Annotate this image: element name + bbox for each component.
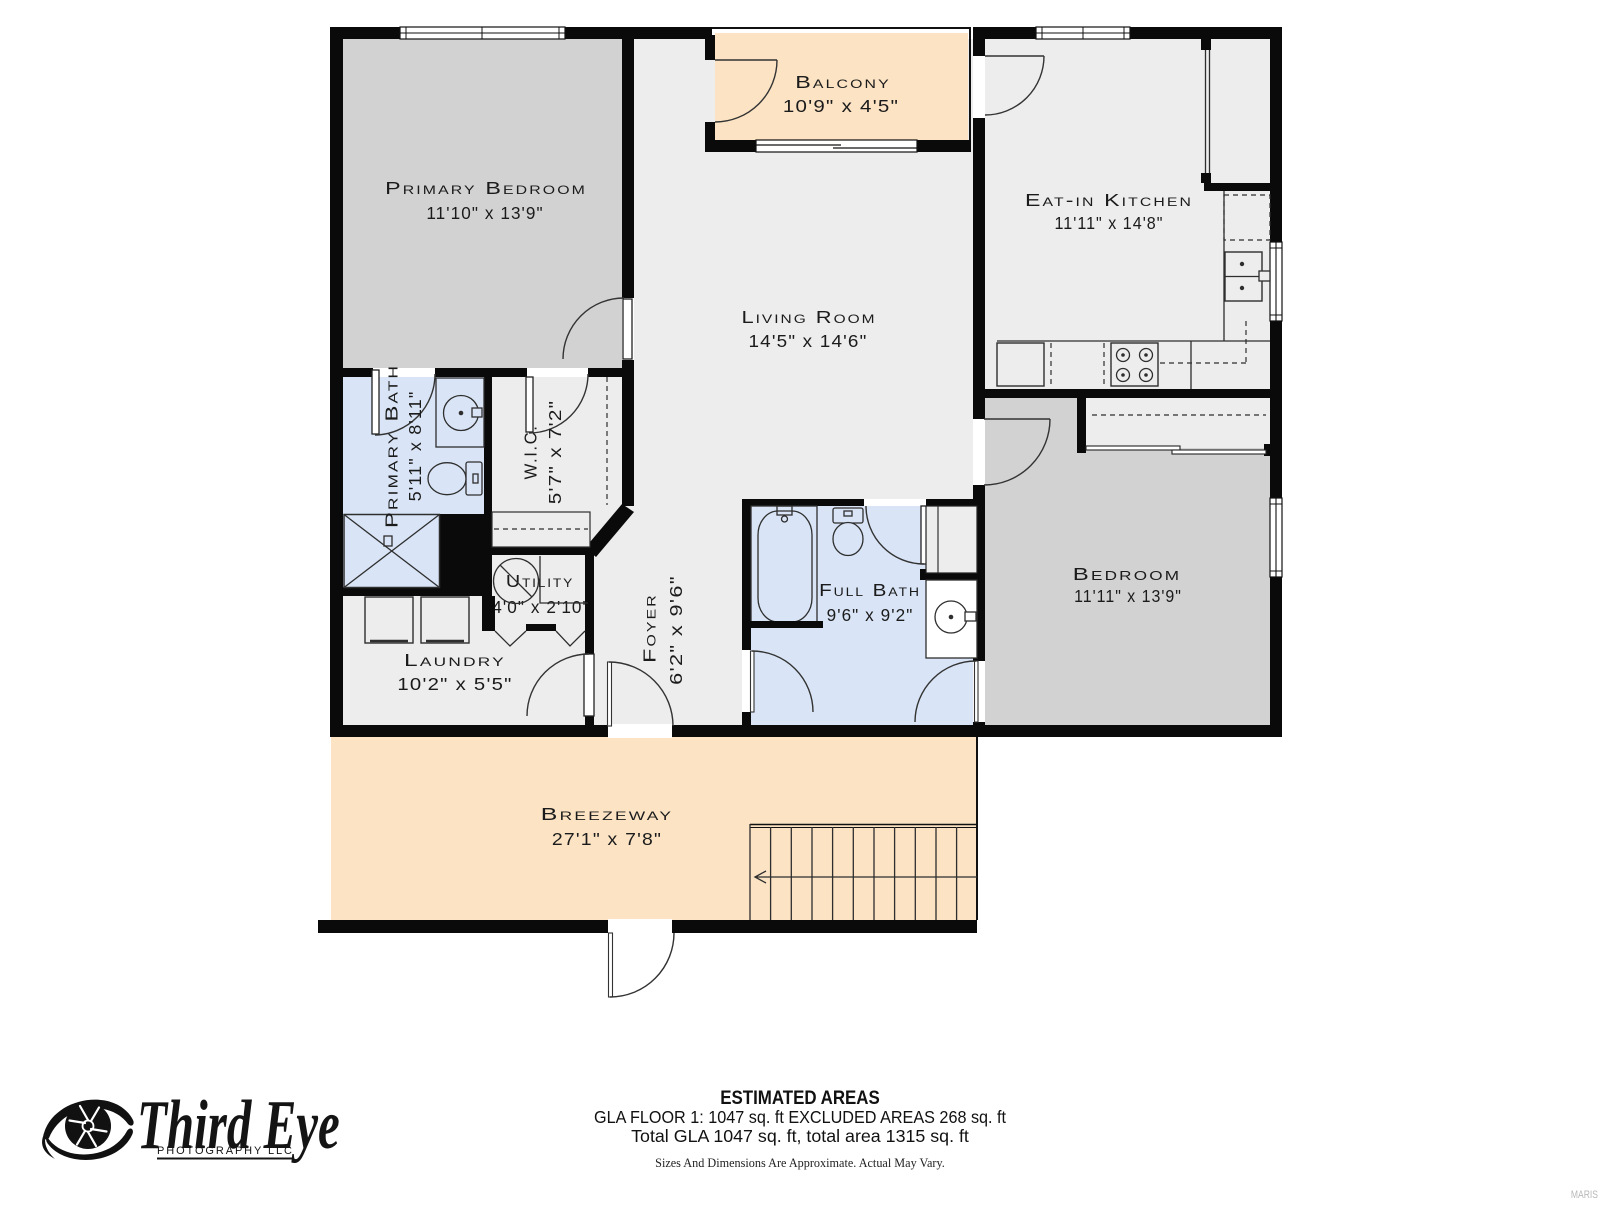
svg-text:Eat-in Kitchen: Eat-in Kitchen bbox=[1025, 191, 1193, 211]
svg-text:Laundry: Laundry bbox=[404, 650, 506, 670]
svg-text:W.I.C.: W.I.C. bbox=[520, 425, 540, 480]
svg-text:10'9" x 4'5": 10'9" x 4'5" bbox=[783, 97, 899, 116]
svg-text:Foyer: Foyer bbox=[640, 593, 660, 663]
svg-text:6'2" x 9'6": 6'2" x 9'6" bbox=[667, 575, 687, 685]
svg-text:Living Room: Living Room bbox=[741, 308, 876, 327]
svg-text:5'7" x 7'2": 5'7" x 7'2" bbox=[546, 400, 565, 505]
svg-text:Balcony: Balcony bbox=[795, 73, 890, 93]
svg-text:11'11" x 13'9": 11'11" x 13'9" bbox=[1074, 586, 1182, 606]
svg-text:4'0" x 2'10": 4'0" x 2'10" bbox=[492, 597, 589, 617]
svg-text:11'10" x 13'9": 11'10" x 13'9" bbox=[426, 203, 543, 223]
svg-text:5'11" x 8'11": 5'11" x 8'11" bbox=[405, 391, 425, 502]
svg-text:Primary Bath: Primary Bath bbox=[383, 364, 402, 528]
svg-text:Bedroom: Bedroom bbox=[1073, 565, 1181, 584]
svg-text:27'1" x 7'8": 27'1" x 7'8" bbox=[552, 829, 662, 849]
svg-text:ESTIMATED AREAS: ESTIMATED AREAS bbox=[720, 1087, 880, 1108]
svg-text:11'11" x 14'8": 11'11" x 14'8" bbox=[1055, 213, 1164, 233]
svg-text:GLA FLOOR 1: 1047 sq. ft EXCLU: GLA FLOOR 1: 1047 sq. ft EXCLUDED AREAS … bbox=[594, 1107, 1006, 1127]
svg-text:Primary Bedroom: Primary Bedroom bbox=[385, 179, 587, 199]
svg-text:PHOTOGRAPHY LLC: PHOTOGRAPHY LLC bbox=[157, 1145, 294, 1157]
svg-text:Full Bath: Full Bath bbox=[819, 581, 921, 600]
svg-text:Breezeway: Breezeway bbox=[541, 805, 673, 825]
svg-text:Total GLA 1047 sq. ft, total a: Total GLA 1047 sq. ft, total area 1315 s… bbox=[631, 1126, 969, 1146]
svg-text:9'6" x 9'2": 9'6" x 9'2" bbox=[827, 605, 914, 625]
svg-text:MARIS: MARIS bbox=[1571, 1189, 1599, 1200]
svg-text:14'5" x 14'6": 14'5" x 14'6" bbox=[748, 332, 867, 351]
svg-text:10'2" x 5'5": 10'2" x 5'5" bbox=[397, 675, 512, 694]
svg-text:Sizes And Dimensions Are Appro: Sizes And Dimensions Are Approximate. Ac… bbox=[655, 1156, 945, 1170]
